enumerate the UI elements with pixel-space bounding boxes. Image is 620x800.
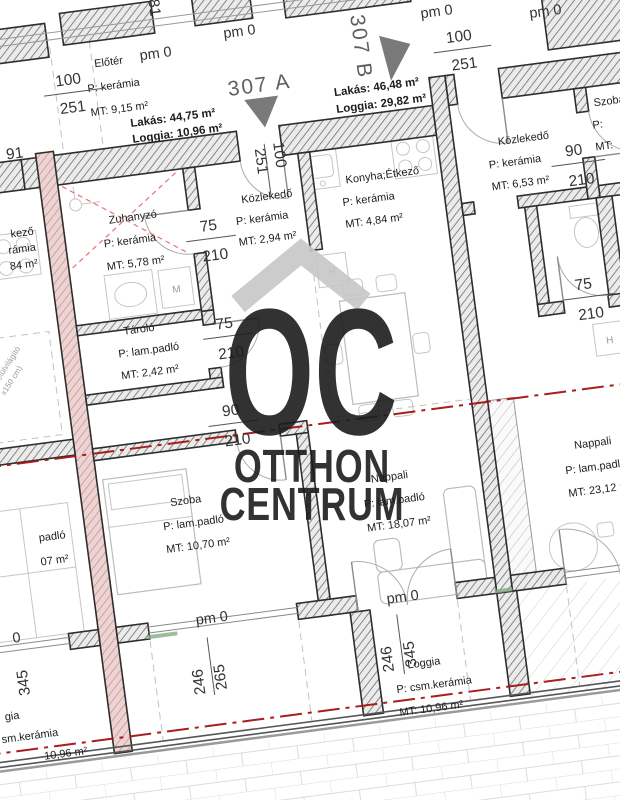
wall [525, 206, 551, 317]
svg-text:07 m²: 07 m² [40, 553, 70, 569]
svg-text:251: 251 [451, 54, 479, 74]
svg-text:84 m²: 84 m² [9, 257, 39, 273]
dim-window-nappali-a: 345 246 [374, 612, 421, 677]
wall [93, 430, 237, 461]
svg-text:padló: padló [38, 529, 66, 544]
wall [596, 196, 620, 307]
wall [298, 152, 323, 251]
svg-text:Előtér: Előtér [94, 55, 124, 71]
parapet-label: pm 0 [195, 609, 229, 629]
svg-text:P: kerámia: P: kerámia [342, 190, 397, 209]
room-label-kozlekedo-b: Közlekedő P: kerámia MT: 6,53 m² [485, 130, 555, 194]
svg-text:P: lam.padló: P: lam.padló [565, 457, 620, 477]
washing-machine-label: M [172, 284, 182, 296]
shower-head-icon [69, 198, 82, 211]
wall [574, 87, 589, 112]
watermark-logo: OC OTTHON CENTRUM [220, 252, 405, 530]
svg-text:P: kerámia: P: kerámia [235, 209, 290, 228]
svg-text:kező: kező [10, 226, 35, 241]
svg-text:MT: 2,42 m²: MT: 2,42 m² [121, 363, 180, 383]
watermark-word-2: CENTRUM [220, 479, 405, 530]
neighbour-room-label: padló 07 m² [37, 529, 70, 568]
wall [537, 301, 564, 316]
svg-text:sm.kerámia: sm.kerámia [1, 727, 60, 746]
neighbour-loggia-label: gia sm.kerámia 10,96 m² [0, 701, 88, 767]
floor-plan-page: H M [0, 0, 620, 800]
svg-text:75: 75 [574, 275, 593, 294]
svg-text:246: 246 [378, 645, 398, 673]
svg-text:251: 251 [59, 98, 87, 118]
dim-window-szoba-a: 265 246 [185, 635, 231, 698]
entrance-marker-icon [244, 96, 282, 130]
dim-top-cut: 81 [144, 0, 163, 17]
skylight-note: felülvilágító x150 cm) [0, 344, 28, 399]
bed [103, 469, 201, 595]
svg-text:P: kerámia: P: kerámia [87, 76, 142, 95]
wall [183, 167, 200, 210]
svg-text:MT:: MT: [595, 139, 614, 153]
wall-bottom [68, 630, 100, 650]
svg-text:Zuhanyzó: Zuhanyzó [108, 208, 157, 226]
svg-text:75: 75 [199, 217, 218, 236]
parapet-label: pm 0 [222, 22, 256, 42]
svg-text:MT: 2,94 m²: MT: 2,94 m² [238, 229, 297, 249]
wall-bottom [116, 623, 150, 643]
fridge-b-label: H [606, 335, 615, 347]
svg-text:210: 210 [577, 304, 605, 324]
wall [608, 293, 620, 307]
entrance-marker-icon [379, 32, 415, 82]
room-label-tarolo: Tároló P: lam.padló MT: 2,42 m² [115, 319, 183, 383]
svg-text:100: 100 [445, 27, 473, 47]
svg-text:210: 210 [201, 245, 229, 265]
svg-text:P:: P: [592, 118, 604, 131]
neighbour-kitchen-label: kező rámia 84 m² [5, 226, 39, 273]
parapet-label: pm 0 [420, 2, 454, 22]
wall-top-b [498, 49, 620, 98]
svg-text:Közlekedő: Közlekedő [497, 130, 550, 149]
dim-window-left: 345 [14, 669, 34, 697]
svg-text:90: 90 [564, 141, 584, 160]
svg-text:MT: 5,78 m²: MT: 5,78 m² [106, 254, 165, 274]
dim-door-zuhanyzo: 75 210 [184, 214, 240, 267]
bathroom-fixtures: M [67, 173, 195, 322]
svg-text:Közlekedő: Közlekedő [241, 188, 294, 207]
fridge-b: H [593, 321, 620, 357]
unit-a-label: 307 A [226, 70, 292, 101]
svg-text:P: kerámia: P: kerámia [488, 153, 543, 172]
svg-text:246: 246 [189, 668, 209, 696]
floor-plan-canvas: H M [0, 0, 620, 800]
room-label-szoba-b: Szoba P: MT: [589, 93, 620, 153]
wall-pier [0, 23, 49, 64]
svg-text:P: kerámia: P: kerámia [103, 232, 158, 251]
svg-text:100: 100 [54, 70, 82, 90]
dim-entry-b-top: 100 251 [431, 24, 494, 76]
wall-neighbour [0, 439, 75, 472]
svg-text:P: lam.padló: P: lam.padló [118, 341, 180, 361]
wall [462, 202, 475, 215]
svg-text:MT: 23,12 m²: MT: 23,12 m² [568, 480, 620, 500]
parapet-label: pm 0 [139, 44, 173, 64]
wall-bottom [296, 596, 358, 620]
svg-text:MT: 6,53 m²: MT: 6,53 m² [491, 174, 550, 194]
unit-b-label: 307 B [345, 13, 376, 80]
parapet-label-cut: 0 [12, 630, 22, 647]
loggia-pier [350, 610, 383, 716]
room-label-konyha: Konyha;Étkező P: kerámia MT: 4,84 m² [339, 164, 426, 231]
svg-text:Nappali: Nappali [573, 435, 612, 452]
svg-text:Szoba: Szoba [593, 93, 620, 109]
parapet-label: pm 0 [386, 588, 420, 608]
wall-pier [59, 1, 154, 45]
round-table [546, 518, 618, 574]
wall [598, 177, 620, 198]
svg-text:210: 210 [568, 170, 596, 190]
room-label-zuhanyzo: Zuhanyzó P: kerámia MT: 5,78 m² [100, 208, 165, 273]
room-label-kozlekedo-a: Közlekedő P: kerámia MT: 2,94 m² [233, 188, 299, 249]
wall [85, 377, 223, 405]
svg-text:100: 100 [269, 141, 289, 169]
svg-text:rámia: rámia [8, 241, 38, 257]
wall [202, 310, 216, 325]
room-label-nappali-b: Nappali P: lam.padló MT: 23,12 m² [562, 433, 620, 500]
dim-left-cut: 91 [5, 144, 24, 163]
svg-text:MT: 4,84 m²: MT: 4,84 m² [345, 211, 404, 231]
svg-text:gia: gia [4, 710, 21, 724]
svg-text:Konyha;Étkező: Konyha;Étkező [345, 164, 420, 187]
